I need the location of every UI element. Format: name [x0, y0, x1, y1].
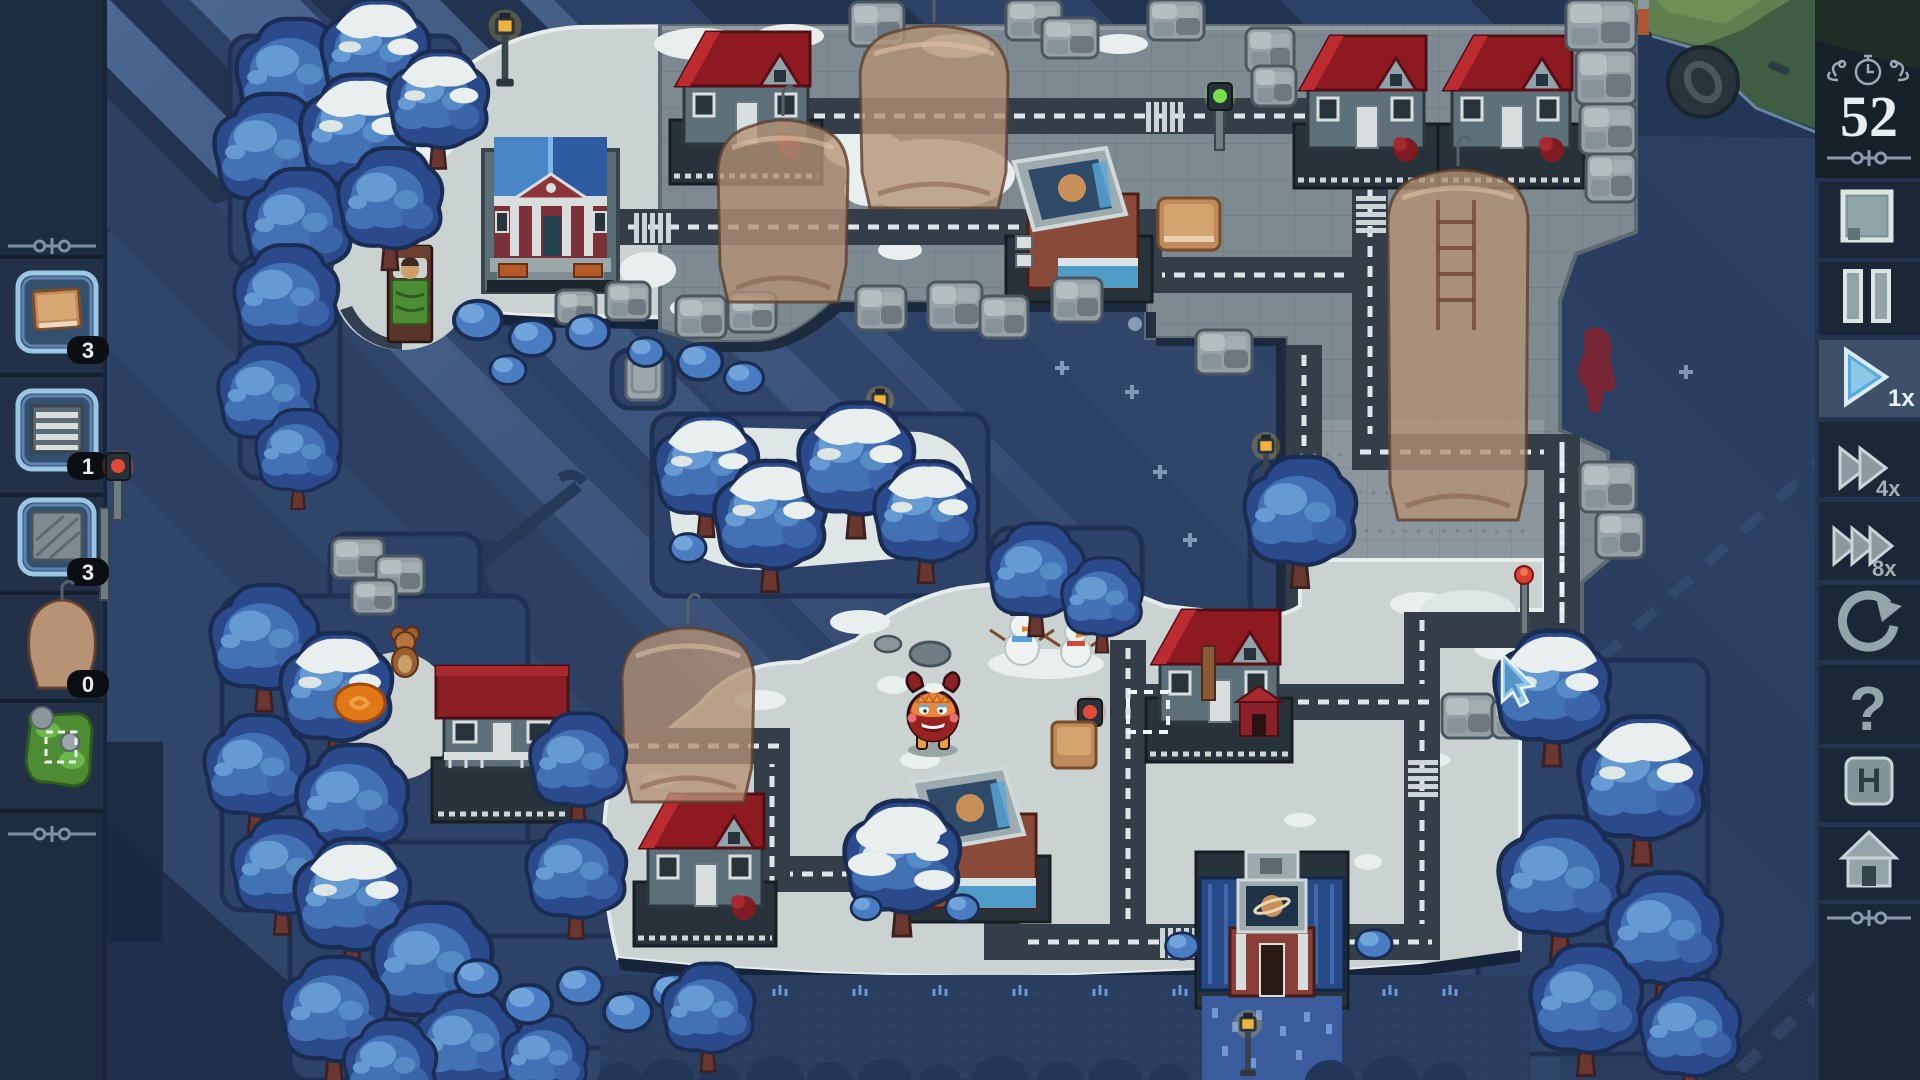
svg-text:1x: 1x	[1888, 385, 1915, 412]
svg-text:?: ?	[1849, 675, 1887, 744]
svg-text:3: 3	[82, 560, 94, 585]
svg-text:1: 1	[82, 454, 94, 479]
svg-text:4x: 4x	[1876, 476, 1901, 501]
svg-text:0: 0	[82, 672, 94, 697]
svg-text:8x: 8x	[1872, 556, 1897, 581]
svg-text:H: H	[1857, 762, 1882, 800]
svg-text:3: 3	[82, 338, 94, 363]
svg-text:52: 52	[1840, 84, 1898, 149]
